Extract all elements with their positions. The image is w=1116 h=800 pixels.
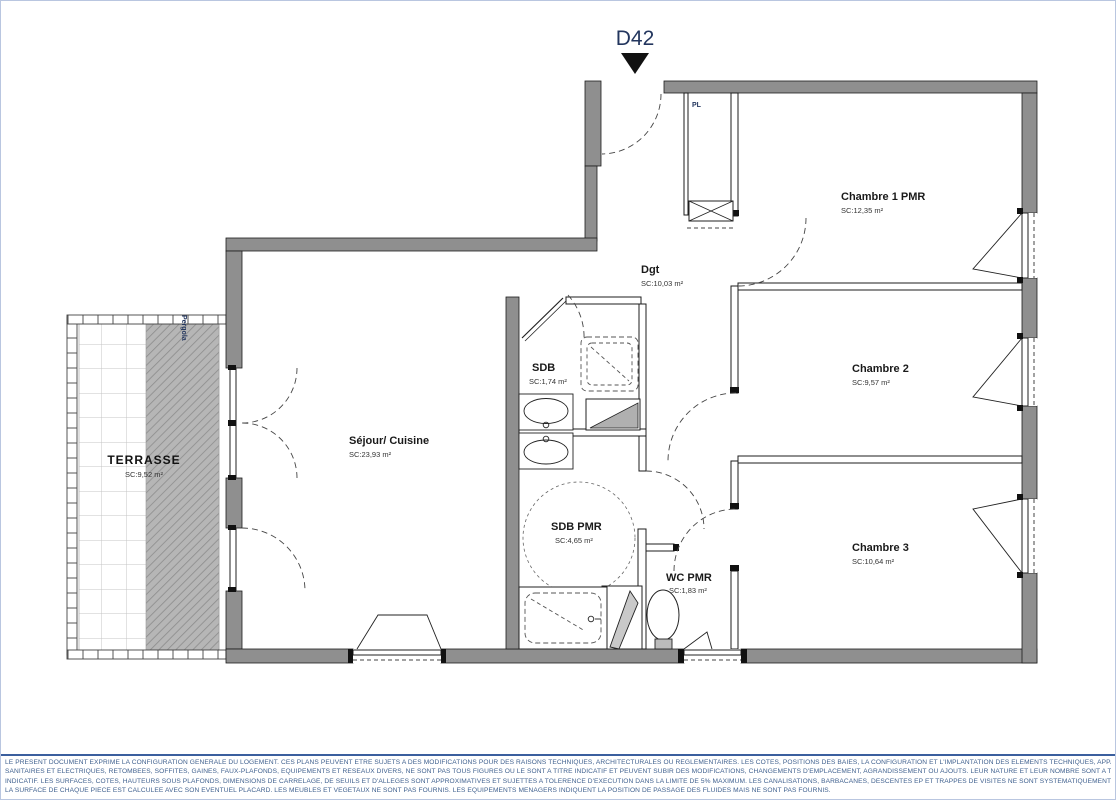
- chambre1-door-swing: [738, 218, 806, 286]
- chambre3-door-swing: [674, 509, 736, 571]
- disclaimer: LE PRESENT DOCUMENT EXPRIME LA CONFIGURA…: [1, 754, 1115, 799]
- pergola-label: Pergola: [180, 315, 187, 341]
- entry-door-swing: [602, 94, 661, 154]
- room-label-terrasse: TERRASSE: [107, 453, 180, 467]
- room-label-sejour: Séjour/ Cuisine: [349, 435, 429, 447]
- room-area-chambre3: SC:10,64 m²: [852, 557, 895, 566]
- room-label-chambre2: Chambre 2: [852, 363, 909, 375]
- room-label-dgt: Dgt: [641, 264, 660, 276]
- chambre2-door-swing: [668, 393, 736, 461]
- window-chambre3: [973, 499, 1037, 573]
- floor-plan-page: D42 Pergola: [0, 0, 1116, 800]
- disclaimer-line: SANITAIRES ET ELECTRIQUES, RETOMBEES, SO…: [5, 767, 1111, 777]
- floor-plan: D42 Pergola: [1, 1, 1115, 751]
- room-area-chambre1: SC:12,35 m²: [841, 206, 884, 215]
- terrace-french-door: [228, 365, 297, 480]
- room-label-sdb: SDB: [532, 362, 555, 374]
- room-label-chambre1: Chambre 1 PMR: [841, 191, 925, 203]
- terrace: Pergola: [67, 315, 226, 659]
- terrace-railing-bottom: [67, 650, 226, 659]
- sdb-pmr-door-swing: [646, 471, 704, 529]
- unit-arrow-icon: [621, 53, 649, 74]
- room-area-wc-pmr: SC:1,83 m²: [669, 586, 707, 595]
- room-area-sdb: SC:1,74 m²: [529, 377, 567, 386]
- exterior-walls: [226, 81, 1037, 663]
- terrace-railing-left: [67, 317, 77, 655]
- window-chambre2: [973, 338, 1037, 406]
- room-label-chambre3: Chambre 3: [852, 542, 909, 554]
- room-label-wc-pmr: WC PMR: [666, 572, 712, 584]
- room-area-sdb-pmr: SC:4,65 m²: [555, 536, 593, 545]
- disclaimer-line: LE PRESENT DOCUMENT EXPRIME LA CONFIGURA…: [5, 758, 1111, 768]
- sink-sdb: [519, 394, 573, 430]
- terrace-single-door: [228, 525, 305, 592]
- wc-door-leaf: [602, 586, 642, 649]
- closet: PL: [687, 102, 735, 228]
- closet-label: PL: [692, 102, 702, 109]
- pergola-hatch: [146, 323, 219, 654]
- shower: [581, 337, 638, 391]
- window-chambre1: [973, 213, 1037, 278]
- terrace-railing-top: [67, 315, 226, 324]
- room-area-sejour: SC:23,93 m²: [349, 450, 392, 459]
- room-area-dgt: SC:10,03 m²: [641, 279, 684, 288]
- bathtub: [519, 587, 607, 649]
- washing-machine: [586, 399, 640, 430]
- room-area-terrasse: SC:9,52 m²: [125, 470, 163, 479]
- sink-sdb-pmr: [519, 433, 573, 469]
- disclaimer-line: LA SURFACE DE CHAQUE PIECE EST CALCULEE …: [5, 786, 1111, 796]
- unit-label: D42: [616, 27, 655, 50]
- window-sejour: [348, 615, 446, 663]
- room-area-chambre2: SC:9,57 m²: [852, 378, 890, 387]
- room-label-sdb-pmr: SDB PMR: [551, 521, 602, 533]
- toilet: [647, 590, 679, 649]
- disclaimer-line: INDICATIF. LES SURFACES, COTES, HAUTEURS…: [5, 777, 1111, 787]
